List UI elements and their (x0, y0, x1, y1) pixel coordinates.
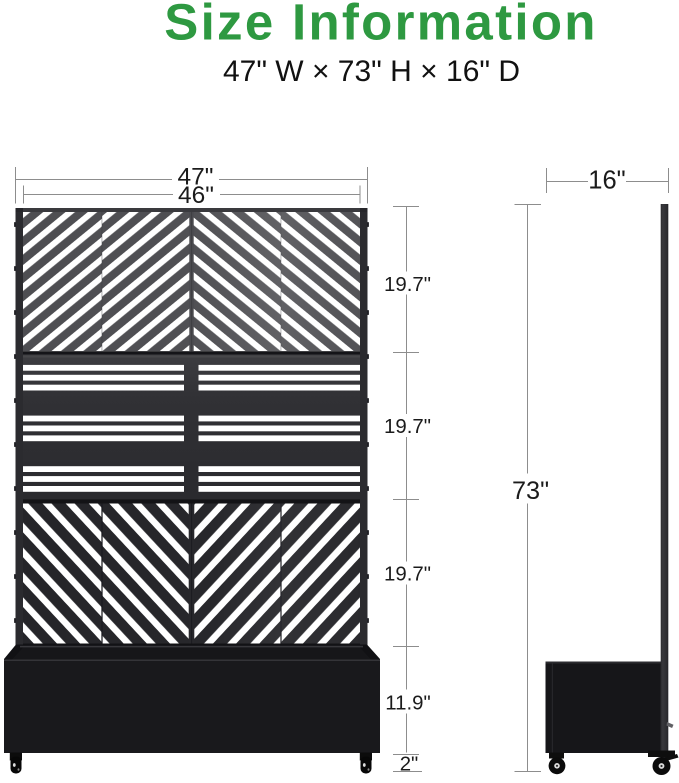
svg-text:47" W × 73" H × 16" D: 47" W × 73" H × 16" D (223, 55, 520, 88)
svg-text:46": 46" (178, 182, 214, 209)
svg-text:19.7": 19.7" (384, 274, 431, 296)
svg-text:19.7": 19.7" (384, 416, 431, 438)
svg-text:2": 2" (400, 754, 419, 776)
svg-text:73": 73" (512, 477, 549, 505)
svg-text:Size Information: Size Information (164, 0, 598, 51)
svg-text:19.7": 19.7" (384, 564, 431, 586)
svg-text:16": 16" (588, 167, 625, 195)
svg-text:11.9": 11.9" (385, 693, 430, 715)
